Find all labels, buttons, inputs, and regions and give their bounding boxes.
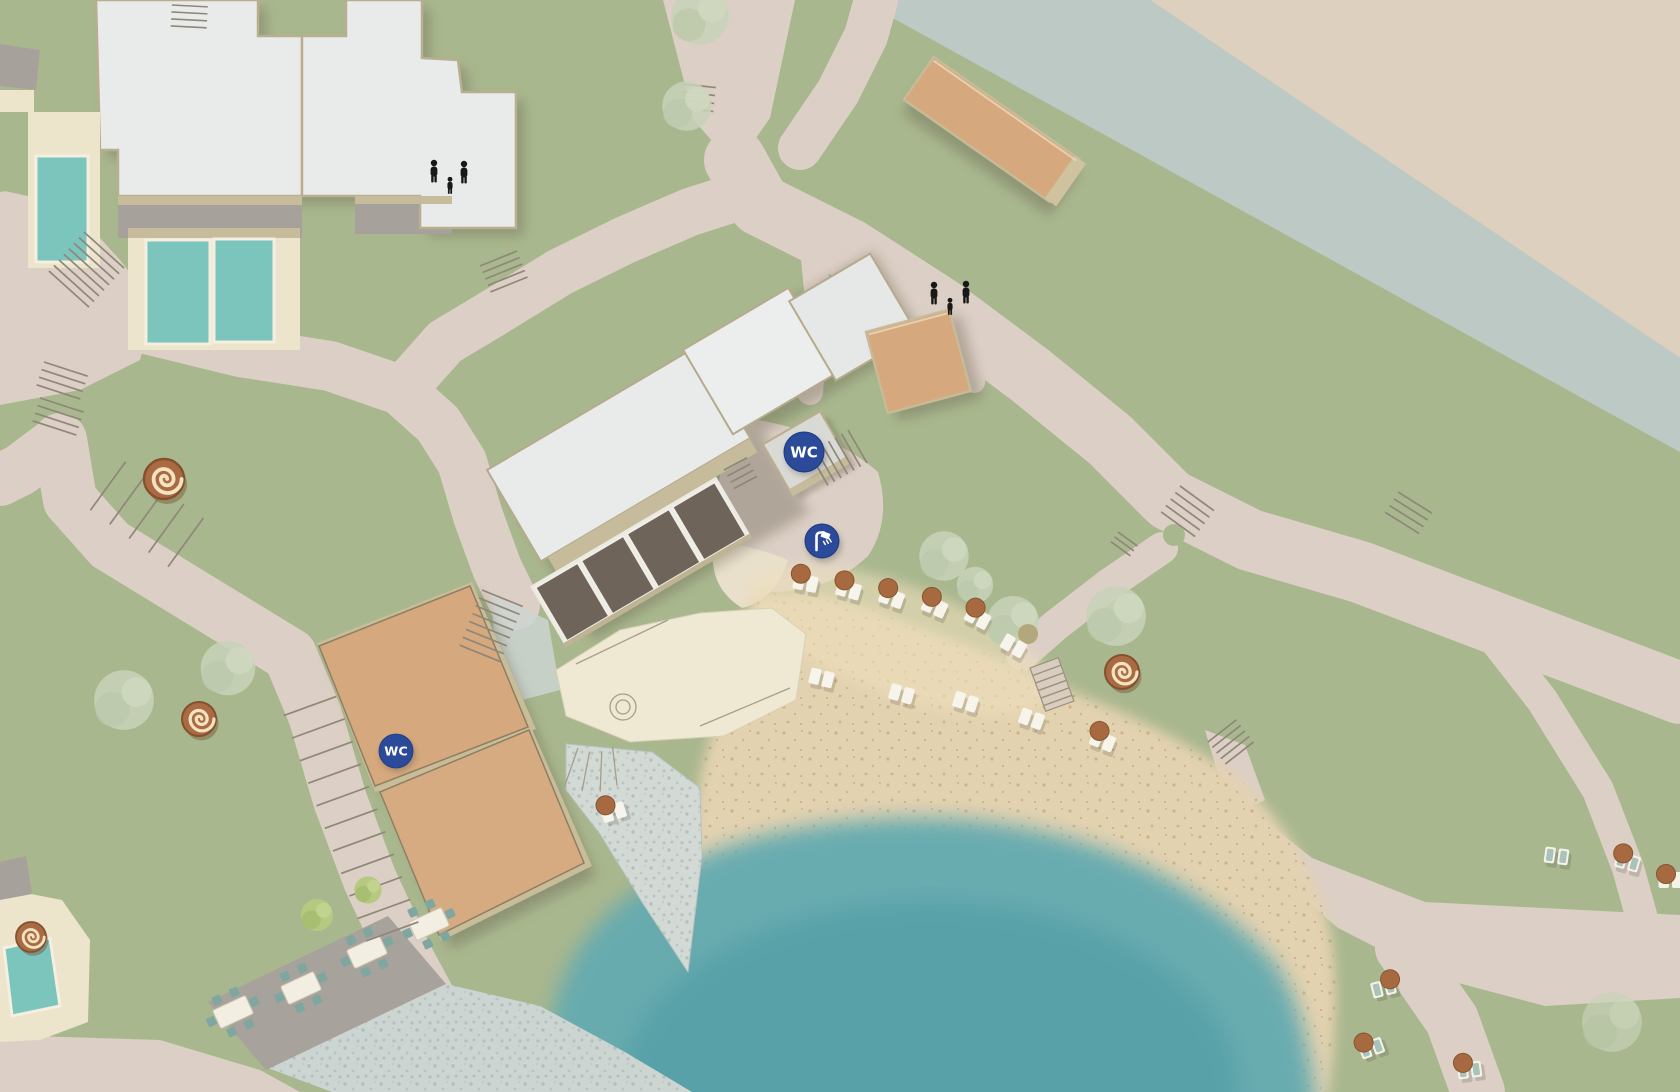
pool-deck-south bbox=[128, 228, 300, 350]
tree bbox=[1086, 586, 1146, 646]
lawn-patch-west bbox=[0, 110, 28, 192]
tree bbox=[301, 899, 333, 931]
gray-block-nw bbox=[0, 44, 40, 90]
west-walk-branch bbox=[0, 440, 60, 480]
pool-deck-west bbox=[28, 112, 100, 268]
swimming-pool bbox=[36, 156, 88, 262]
tree bbox=[94, 670, 154, 730]
tree bbox=[662, 81, 711, 130]
tree bbox=[1582, 992, 1642, 1052]
swimming-pool bbox=[146, 240, 210, 344]
roof-edge-khaki bbox=[118, 196, 302, 205]
swimming-pool bbox=[214, 239, 274, 342]
deck-strip bbox=[0, 90, 34, 112]
map-canvas[interactable]: WC bbox=[0, 0, 1680, 1092]
roof-edge-khaki-2 bbox=[355, 196, 452, 204]
tree bbox=[354, 876, 381, 903]
tree bbox=[201, 641, 256, 696]
resort-site-map[interactable]: WC bbox=[0, 0, 1680, 1092]
